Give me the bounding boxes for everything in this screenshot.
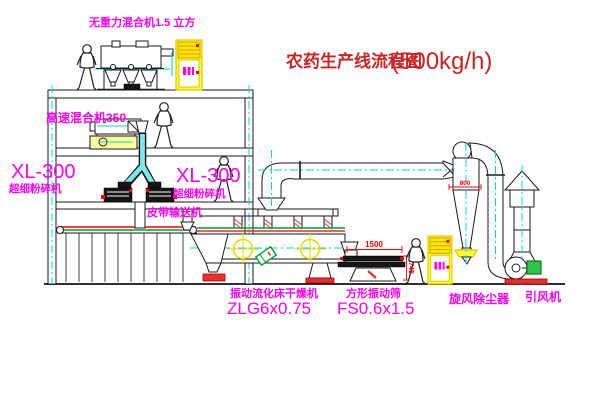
person-figure-ground — [406, 239, 425, 284]
label-dryer-model: ZLG6x0.75 — [227, 299, 311, 318]
fan-motor — [527, 261, 541, 274]
dryer-pedestal — [309, 263, 331, 278]
belt-conveyor — [57, 227, 198, 283]
control-cabinet-lower — [428, 236, 452, 284]
dim-text-800: 800 — [460, 180, 471, 187]
label-dryer-name: 振动流化床干燥机 — [230, 286, 318, 300]
cad-flow-diagram: 无重力混合机1.5 立方 高速混合机350 XL-300 超细粉碎机 XL-30… — [0, 0, 600, 403]
label-screen-name: 方形振动筛 — [346, 286, 401, 300]
control-cabinet-upper — [176, 40, 202, 90]
gravity-mixer — [94, 41, 173, 90]
label-mill-left-model: XL-300 — [11, 161, 76, 183]
person-figure-floor2 — [154, 103, 173, 148]
dim-text-745: 745 — [407, 262, 414, 274]
page-title-capacity: (500kg/h) — [391, 48, 492, 75]
cyclone-dust-collector — [449, 142, 481, 267]
label-fan-name: 引风机 — [525, 289, 561, 304]
dryer-exhaust-duct — [258, 150, 456, 214]
drawing-canvas: 无重力混合机1.5 立方 高速混合机350 XL-300 超细粉碎机 XL-30… — [0, 0, 600, 403]
fluid-bed-dryer — [190, 209, 358, 283]
label-cyclone-name: 旋风除尘器 — [448, 291, 510, 306]
label-mill-right-name: 超细粉碎机 — [172, 187, 226, 200]
label-mill-left-name: 超细粉碎机 — [8, 182, 62, 195]
label-screen-model: FS0.6x1.5 — [337, 299, 415, 318]
vibrating-screen — [338, 246, 409, 281]
conveyor-pulley-left — [57, 227, 64, 234]
pulverizer-left — [101, 182, 132, 202]
fan-base — [505, 279, 547, 284]
label-mill-right-model: XL-300 — [176, 165, 241, 187]
dryer-base-right — [306, 278, 334, 283]
cyclone-outlet-cap — [453, 142, 471, 160]
label-top-mixer: 无重力混合机1.5 立方 — [88, 15, 195, 29]
person-figure-roof — [77, 45, 96, 90]
mixer-discharge-hoppers — [105, 65, 157, 87]
dim-text-1500: 1500 — [365, 240, 383, 249]
dryer-base-left — [203, 274, 225, 281]
label-belt-conveyor: 皮带输送机 — [146, 205, 202, 219]
label-high-speed-mixer: 高速混合机350 — [46, 110, 126, 125]
